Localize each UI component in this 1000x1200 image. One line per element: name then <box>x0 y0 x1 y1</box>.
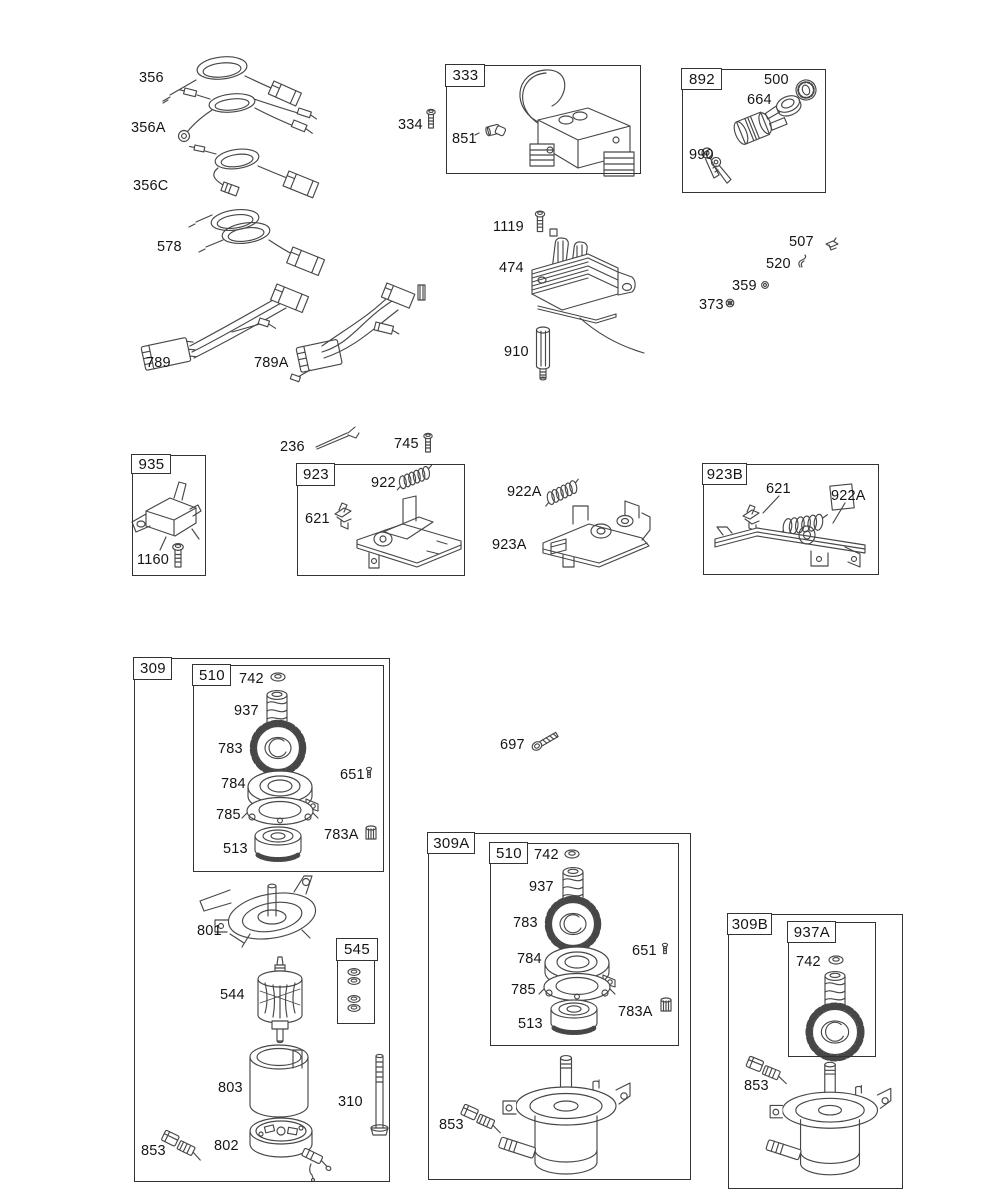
connector-853-309B-icon <box>746 1056 791 1084</box>
drawing-bracket-935 <box>132 482 201 550</box>
drawing-link-236 <box>316 427 359 449</box>
drawing-wire-578 <box>189 207 325 276</box>
clip-520-icon <box>799 255 806 267</box>
bolt-697-icon <box>531 731 559 752</box>
drawing-starter-motor-309A <box>498 1056 630 1174</box>
drawing-washer-kit-545 <box>348 969 360 1012</box>
clip-507-icon <box>826 238 838 250</box>
drawing-harness-789 <box>141 284 309 370</box>
drawing-thru-bolt-310 <box>371 1054 388 1135</box>
drawing-brake-assembly-923 <box>335 463 461 568</box>
drawing-brake-assembly-923B <box>715 484 865 567</box>
drawing-brake-assembly-923A <box>543 501 650 567</box>
screw-334-icon <box>427 109 435 128</box>
drawing-drive-cap-801 <box>200 876 319 947</box>
spring-922A-icon <box>540 477 583 508</box>
connector-853-309-icon <box>161 1130 206 1160</box>
keys-990-icon <box>702 148 732 185</box>
nut-373-icon <box>726 299 734 307</box>
drawing-boot-851 <box>475 123 508 140</box>
parts-diagram-canvas: 333892935923923B309510545309A510309B937A… <box>0 0 1000 1200</box>
screw-1160-icon <box>173 544 184 567</box>
drawing-housing-803 <box>250 1045 308 1117</box>
drawing-gear-stack-309 <box>242 673 376 860</box>
drawing-wire-356 <box>163 54 301 106</box>
screw-745-icon <box>424 433 432 452</box>
drawing-standoff-910 <box>537 327 550 380</box>
drawing-key-switch-892 <box>702 77 819 185</box>
drawing-brush-cap-802 <box>250 1118 334 1182</box>
drawing-ignition-coil-333 <box>520 70 634 176</box>
drawing-gear-stack-309A <box>539 850 671 1033</box>
drawing-gear-stack-309B <box>809 956 862 1058</box>
drawing-harness-789A <box>290 283 425 382</box>
drawing-starter-armature-544 <box>258 957 302 1043</box>
connector-853-309A-icon <box>460 1104 505 1133</box>
screw-1119-icon <box>535 211 544 232</box>
drawing-wire-356C <box>189 144 319 198</box>
washer-359-icon <box>762 282 769 289</box>
diagram-line-art <box>0 0 1000 1200</box>
drawing-starter-motor-309B <box>766 1062 891 1174</box>
